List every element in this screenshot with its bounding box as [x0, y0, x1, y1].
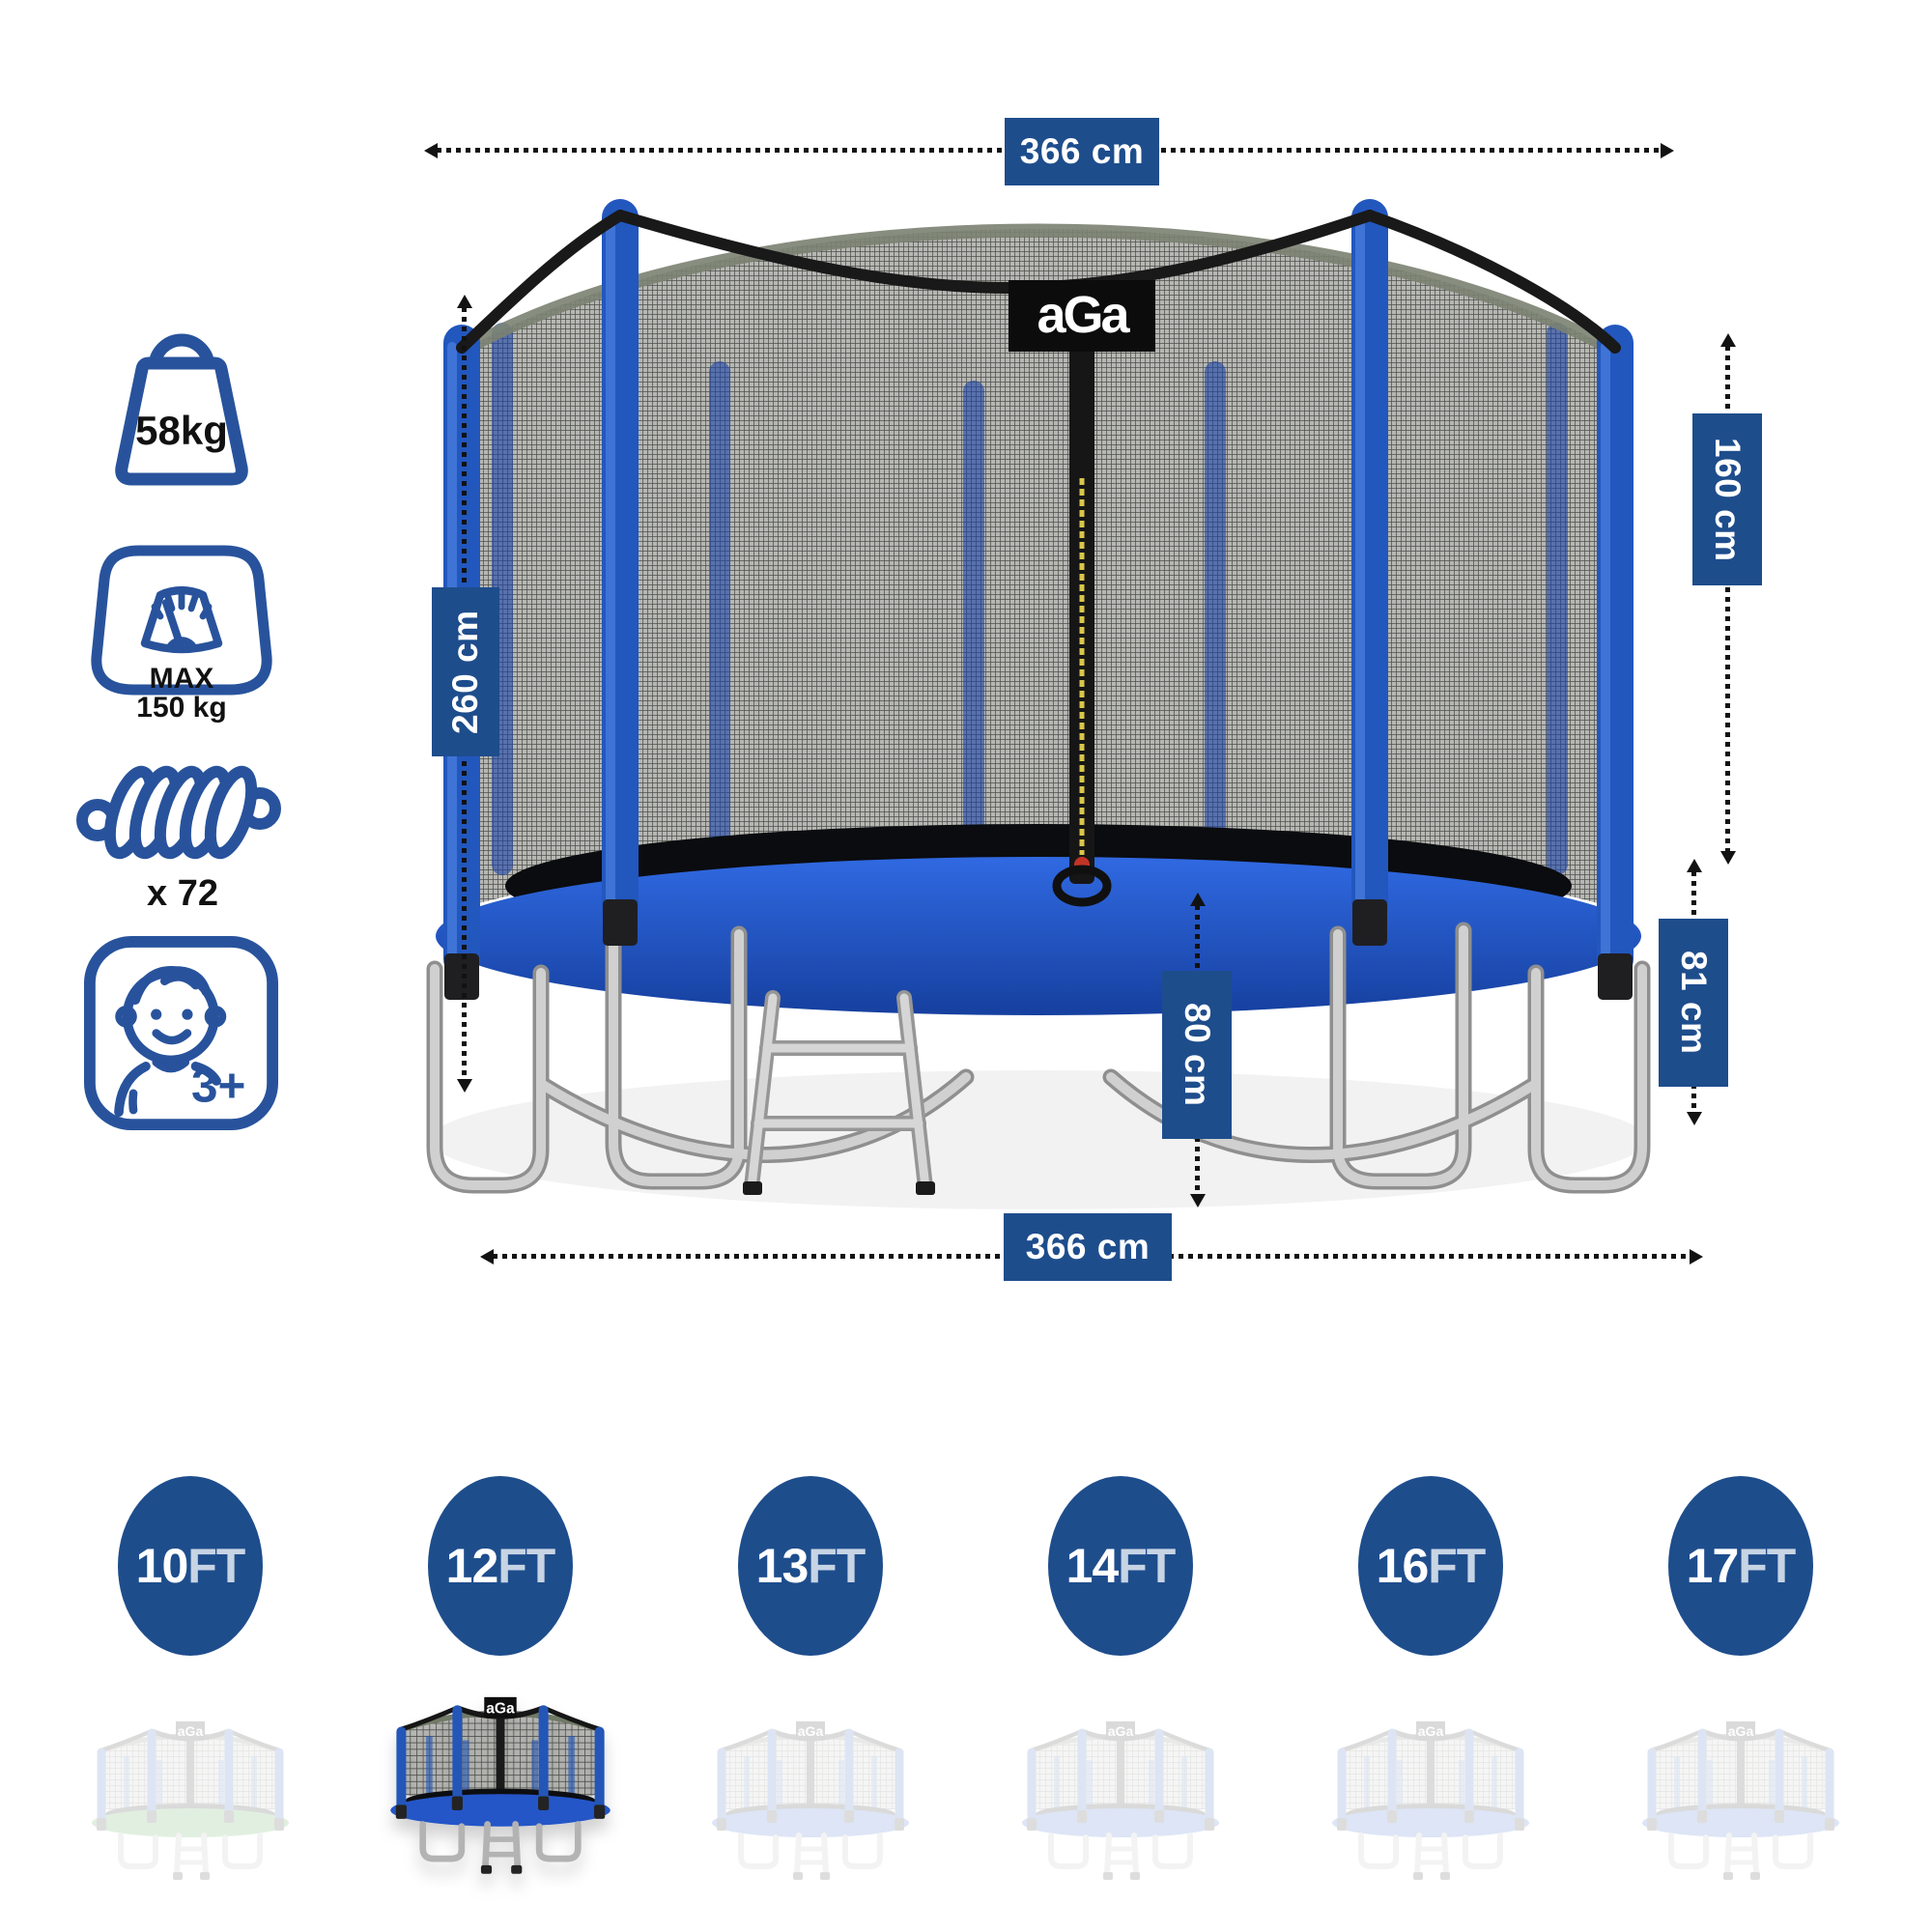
dim-badge-frame-height: 81 cm — [1659, 919, 1728, 1087]
spec-max-load: MAX 150 kg — [81, 539, 282, 729]
arrow-down-icon — [1190, 1194, 1206, 1207]
size-circle[interactable]: 10FT — [118, 1476, 263, 1656]
arrow-up-icon — [1190, 893, 1206, 906]
size-option-10ft[interactable]: 10FT — [45, 1476, 335, 1882]
size-option-13ft[interactable]: 13FT — [666, 1476, 955, 1882]
size-unit: FT — [1118, 1538, 1175, 1594]
dim-badge-top-width: 366 cm — [1005, 118, 1159, 185]
arrow-up-icon — [1687, 859, 1702, 872]
brand-logo-text: aGa — [1037, 286, 1130, 344]
size-selector: 10FT 12FT 13FT 14FT 16FT 17FT — [45, 1476, 1887, 1882]
size-circle[interactable]: 16FT — [1358, 1476, 1503, 1656]
size-unit: FT — [1428, 1538, 1485, 1594]
size-value: 16 — [1377, 1538, 1429, 1594]
dim-badge-bottom-width: 366 cm — [1004, 1213, 1172, 1281]
arrow-left-icon — [424, 143, 438, 158]
spec-weight: 58kg — [85, 311, 278, 532]
size-value: 10 — [136, 1538, 188, 1594]
trampoline-thumbnail — [1625, 1681, 1857, 1882]
child-age-icon: 3+ — [77, 929, 285, 1137]
arrow-right-icon — [1690, 1249, 1703, 1264]
dim-badge-total-height: 260 cm — [432, 587, 499, 756]
trampoline-thumbnail — [695, 1681, 926, 1882]
weight-icon: 58kg — [85, 311, 278, 527]
weight-value: 58kg — [135, 408, 228, 453]
size-circle[interactable]: 12FT — [428, 1476, 573, 1656]
trampoline-thumbnail — [1005, 1681, 1236, 1882]
dim-badge-ladder-height: 80 cm — [1162, 971, 1232, 1139]
size-unit: FT — [497, 1538, 554, 1594]
trampoline-infographic: aGa 58kg MAX 150 — [0, 0, 1932, 1932]
trampoline-product-image: aGa — [367, 188, 1662, 1212]
spring-icon: x 72 — [72, 758, 285, 923]
size-value: 12 — [446, 1538, 498, 1594]
scale-icon: MAX 150 kg — [81, 539, 282, 724]
size-option-12ft-selected[interactable]: 12FT — [355, 1476, 645, 1882]
spec-age: 3+ — [77, 929, 285, 1142]
size-circle[interactable]: 13FT — [738, 1476, 883, 1656]
size-value: 13 — [756, 1538, 809, 1594]
size-unit: FT — [808, 1538, 865, 1594]
size-option-14ft[interactable]: 14FT — [976, 1476, 1265, 1882]
trampoline-thumbnail — [74, 1681, 306, 1882]
trampoline-thumbnail — [371, 1652, 630, 1876]
arrow-down-icon — [1687, 1112, 1702, 1125]
size-unit: FT — [187, 1538, 244, 1594]
max-load-line2: 150 kg — [136, 692, 226, 724]
arrow-up-icon — [1720, 333, 1736, 347]
size-circle[interactable]: 17FT — [1668, 1476, 1813, 1656]
arrow-left-icon — [480, 1249, 494, 1264]
max-load-line1: MAX — [150, 663, 214, 695]
arrow-down-icon — [457, 1079, 472, 1093]
arrow-up-icon — [457, 295, 472, 308]
arrow-right-icon — [1661, 143, 1674, 158]
size-value: 14 — [1066, 1538, 1119, 1594]
size-unit: FT — [1738, 1538, 1795, 1594]
spec-springs: x 72 — [72, 758, 285, 927]
size-value: 17 — [1687, 1538, 1739, 1594]
dim-badge-net-height: 160 cm — [1692, 413, 1762, 585]
size-option-16ft[interactable]: 16FT — [1286, 1476, 1576, 1882]
age-label: 3+ — [191, 1059, 245, 1112]
size-option-17ft[interactable]: 17FT — [1596, 1476, 1886, 1882]
springs-count-label: x 72 — [147, 873, 218, 914]
arrow-down-icon — [1720, 851, 1736, 865]
size-circle[interactable]: 14FT — [1048, 1476, 1193, 1656]
trampoline-thumbnail — [1315, 1681, 1547, 1882]
